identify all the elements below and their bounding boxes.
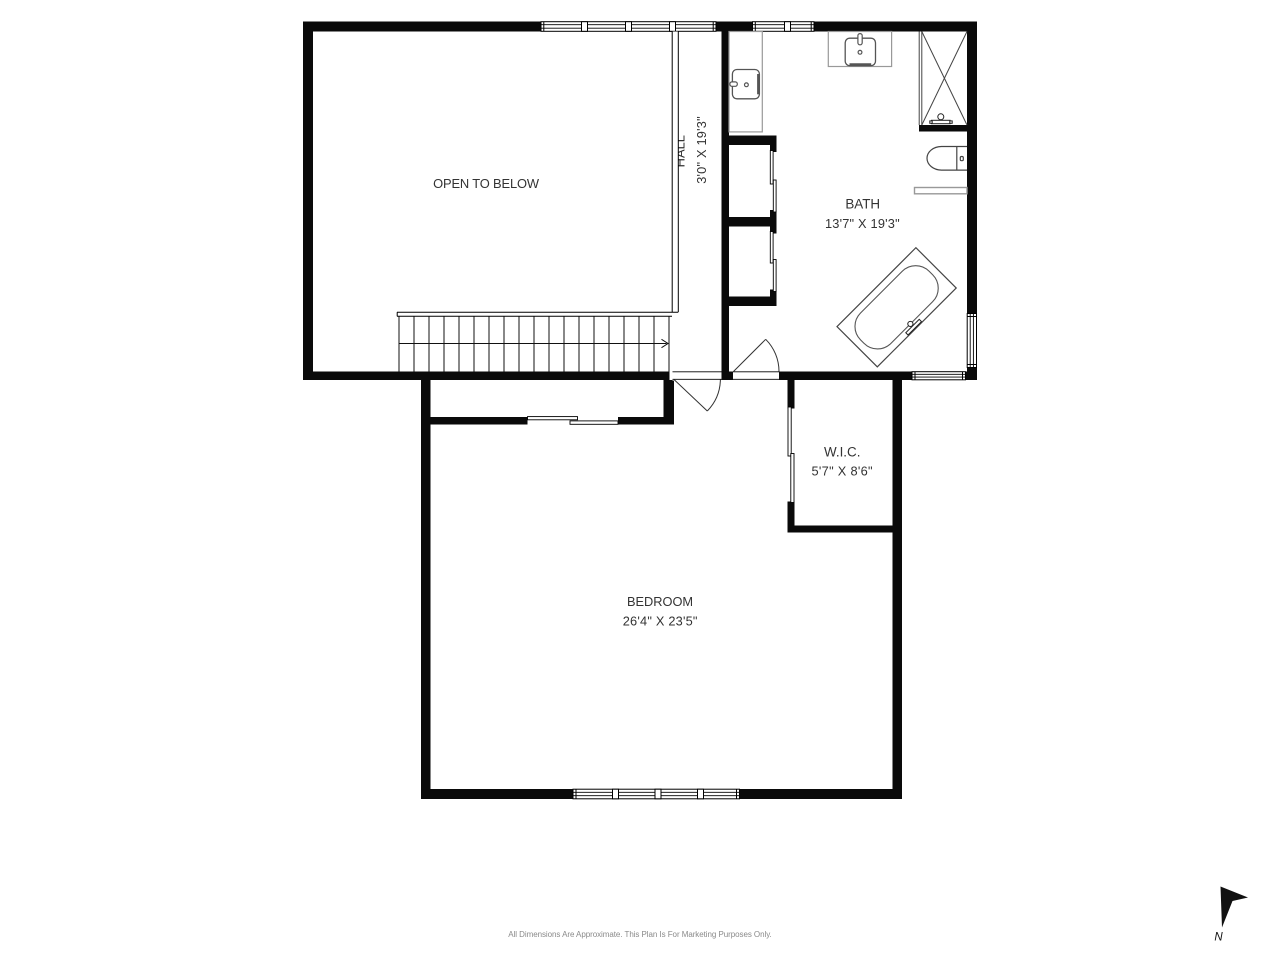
svg-text:N: N <box>1214 932 1223 944</box>
svg-text:26'4" X 23'5": 26'4" X 23'5" <box>623 613 698 628</box>
svg-text:3'0" X 19'3": 3'0" X 19'3" <box>694 116 709 184</box>
svg-text:5'7" X 8'6": 5'7" X 8'6" <box>812 464 873 479</box>
svg-text:BEDROOM: BEDROOM <box>627 594 693 609</box>
svg-text:All Dimensions Are Approximate: All Dimensions Are Approximate. This Pla… <box>508 930 771 939</box>
svg-text:13'7" X 19'3": 13'7" X 19'3" <box>825 216 900 231</box>
svg-text:W.I.C.: W.I.C. <box>824 444 860 459</box>
svg-text:OPEN TO BELOW: OPEN TO BELOW <box>433 176 540 191</box>
svg-text:BATH: BATH <box>845 197 880 212</box>
